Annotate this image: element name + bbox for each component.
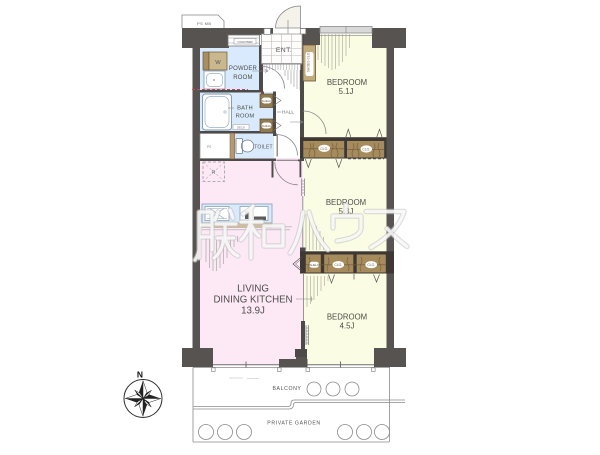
svg-text:COUNTER: COUNTER <box>237 40 253 44</box>
svg-text:LIVING: LIVING <box>237 283 269 294</box>
svg-text:5.1J: 5.1J <box>339 87 354 96</box>
svg-text:ROOM: ROOM <box>233 75 252 81</box>
svg-text:ROOM: ROOM <box>236 114 255 120</box>
svg-text:BEDROOM: BEDROOM <box>327 78 367 87</box>
svg-text:TOILET: TOILET <box>254 145 273 151</box>
svg-text:CLO.: CLO. <box>334 263 342 267</box>
svg-text:N: N <box>137 370 143 380</box>
svg-text:CLO.: CLO. <box>362 148 370 152</box>
svg-text:BEDROOM: BEDROOM <box>327 313 367 322</box>
svg-text:CLO.: CLO. <box>320 147 328 151</box>
svg-text:DECK: DECK <box>237 126 245 130</box>
svg-text:CLO.: CLO. <box>367 263 375 267</box>
svg-text:13.9J: 13.9J <box>241 306 265 317</box>
svg-text:PS MB: PS MB <box>197 21 211 26</box>
svg-text:PRIVATE GARDEN: PRIVATE GARDEN <box>267 421 320 427</box>
svg-text:POWDER: POWDER <box>229 66 258 72</box>
svg-text:SHELF: SHELF <box>309 263 319 267</box>
svg-text:DINING KITCHEN: DINING KITCHEN <box>213 294 292 305</box>
svg-text:ENT.: ENT. <box>276 47 292 54</box>
svg-text:HALL: HALL <box>282 110 294 116</box>
svg-text:SHOES CLO.: SHOES CLO. <box>307 52 311 73</box>
svg-text:SHELF: SHELF <box>262 99 272 103</box>
svg-text:BALCONY: BALCONY <box>273 386 302 392</box>
svg-text:PS: PS <box>207 145 211 149</box>
svg-text:SHELF: SHELF <box>262 124 272 128</box>
svg-text:BATH: BATH <box>237 106 253 112</box>
svg-text:4.5J: 4.5J <box>340 322 355 331</box>
svg-text:W: W <box>215 60 221 66</box>
svg-text:R: R <box>212 170 216 176</box>
